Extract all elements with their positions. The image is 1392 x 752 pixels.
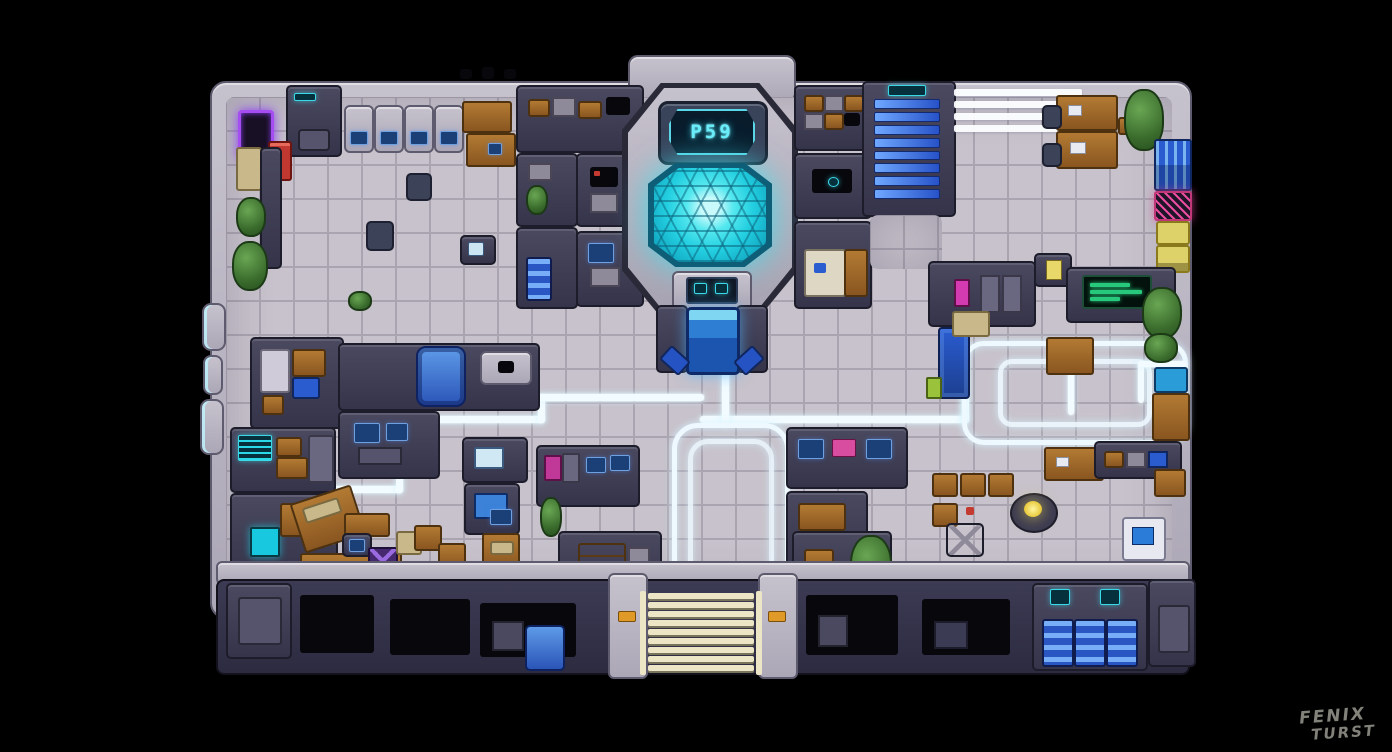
poster: [1046, 260, 1062, 280]
monitor: [586, 457, 606, 473]
fridge: [260, 349, 290, 393]
pipe-box: [492, 621, 524, 651]
crate-lid: [490, 541, 514, 555]
blue-container-shelf: [1154, 139, 1192, 191]
sink: [498, 361, 514, 373]
cabinet: [236, 147, 262, 191]
terminal-screen: [410, 131, 428, 145]
planter-tree: [232, 241, 268, 291]
crate: [262, 395, 284, 415]
blue-locker: [1074, 619, 1106, 667]
vending-machine-yellow: [1156, 221, 1190, 245]
pink-monitor: [832, 439, 856, 457]
cubby: [844, 95, 864, 112]
locker-screen: [1050, 589, 1070, 605]
antenna-icon: [504, 69, 516, 79]
vent-unit: [1002, 275, 1022, 313]
machine: [590, 167, 618, 187]
magenta-locker: [544, 455, 562, 481]
cyan-wall-sign: [238, 435, 272, 461]
seat: [960, 473, 986, 497]
console-screen: [468, 242, 484, 256]
gray-locker: [562, 453, 580, 483]
stair-step: [648, 611, 754, 617]
stair-step: [648, 665, 754, 671]
glow-path: [538, 394, 704, 401]
facade-opening: [922, 599, 1010, 655]
planter-tree: [1144, 333, 1178, 363]
study-desk: [1056, 131, 1118, 169]
stair-tread: [874, 151, 940, 161]
camera-lens-icon: [828, 177, 839, 187]
bunk-room: [250, 337, 344, 429]
study-desk: [1056, 95, 1118, 131]
stair-step: [648, 629, 754, 635]
cyan-machine: [1154, 367, 1188, 393]
screenshot-canvas: { "scene": { "description": "top-down pi…: [0, 0, 1392, 752]
terminal-text-line: [1090, 283, 1130, 287]
reactor-pool-web: [654, 168, 766, 262]
stair-step: [648, 593, 754, 599]
terminal-screen: [440, 131, 458, 145]
monitor: [866, 439, 892, 459]
terminal-desk: [344, 105, 374, 153]
lab-room: [462, 437, 528, 483]
gadget: [926, 377, 942, 399]
office-room: [794, 221, 872, 309]
blast-door: [416, 346, 466, 407]
hull-pod: [203, 355, 223, 395]
machine-light: [594, 171, 600, 176]
camera-room: [794, 153, 872, 219]
pylon-badge: [618, 611, 636, 622]
entrance-pylon: [758, 573, 798, 679]
monitor-room: [338, 411, 440, 479]
cyan-tv: [250, 527, 280, 557]
floor-plant: [348, 291, 372, 311]
medical-unit: [1122, 517, 1166, 561]
stair-step: [648, 656, 754, 662]
stair-step: [648, 602, 754, 608]
crate: [528, 99, 550, 117]
desk-shelf: [358, 447, 402, 465]
stair-tread: [874, 176, 940, 186]
machine: [308, 435, 334, 483]
seat: [988, 473, 1014, 497]
artist-signature: FENIX TURST: [1296, 705, 1378, 744]
cabinet: [1152, 393, 1190, 441]
planter-tree: [236, 197, 266, 237]
station-map: P59: [210, 55, 1192, 680]
facade-opening: [300, 595, 374, 653]
locker-screen: [1100, 589, 1120, 605]
planter-tree: [1142, 287, 1182, 339]
cubby: [804, 113, 824, 130]
monitor: [354, 423, 380, 443]
facade-machine: [1148, 579, 1196, 667]
antenna-icon: [482, 67, 494, 79]
console-room: [464, 483, 520, 535]
stair-tread: [874, 138, 940, 148]
console-screen: [349, 539, 365, 552]
console-cart: [460, 235, 496, 265]
terminal-desk: [434, 105, 464, 153]
cubby: [804, 95, 824, 112]
terminal-text-line: [1090, 297, 1120, 301]
office-chair: [406, 173, 432, 201]
strapped-table: [946, 523, 984, 557]
crate-lid: [302, 497, 343, 524]
stairwell-sign: [888, 85, 926, 96]
terminal-desk: [404, 105, 434, 153]
bin: [552, 97, 576, 117]
monitor: [798, 439, 824, 459]
side-screen: [490, 509, 512, 525]
monitor: [610, 455, 630, 471]
lab-screen: [474, 447, 504, 469]
utility-room: [516, 227, 578, 309]
holo-desk: [1046, 337, 1094, 375]
blue-locker: [1042, 619, 1074, 667]
console-eye: [715, 283, 728, 294]
paper: [1068, 105, 1082, 116]
signature-line2: TURST: [1310, 723, 1377, 743]
dresser: [292, 349, 326, 377]
stair-tread: [874, 125, 940, 135]
stair-tread: [874, 112, 940, 122]
sink-counter: [480, 351, 532, 385]
wooden-table: [466, 133, 516, 167]
floor-plant: [540, 497, 562, 537]
sign-room: [230, 427, 336, 493]
table-tablet: [488, 143, 502, 155]
monitor: [588, 243, 614, 263]
glow-path: [722, 370, 729, 426]
stair-step: [648, 647, 754, 653]
glow-path: [700, 416, 968, 423]
blue-monolith-door: [938, 327, 970, 399]
stair-tread: [874, 163, 940, 173]
crate: [276, 437, 302, 457]
machine-panel: [1158, 605, 1190, 653]
stool: [1154, 469, 1186, 497]
console-eye: [694, 283, 707, 294]
blue-drawer-unit: [526, 257, 552, 301]
hanging-plant: [526, 185, 548, 215]
stair-step: [648, 638, 754, 644]
paper: [1070, 142, 1086, 154]
shelf-item: [1126, 451, 1146, 468]
scanner-seat: [298, 129, 330, 151]
magenta-canister: [954, 279, 970, 307]
shelf-item: [1148, 451, 1168, 468]
seat: [932, 473, 958, 497]
stair-tread: [874, 189, 940, 199]
workstation-room: [786, 427, 908, 489]
green-terminal-screen: [1082, 275, 1152, 309]
white-desk: [804, 249, 846, 297]
crate: [952, 311, 990, 337]
stair-rail: [640, 591, 646, 675]
coffee-table: [798, 503, 846, 531]
facade-opening: [390, 599, 470, 655]
stair-tread: [874, 99, 940, 109]
neon-arcade: [1154, 191, 1192, 221]
pipe-box: [934, 621, 968, 649]
red-item: [966, 507, 974, 515]
closet-room: [516, 153, 578, 227]
medical-screen: [1132, 527, 1154, 545]
chamber-entrance: [686, 307, 740, 375]
pipe-box: [818, 615, 848, 647]
chamber-display: P59: [669, 109, 755, 155]
facade-panel: [238, 597, 282, 645]
paper: [1056, 457, 1069, 467]
facade-blue-door: [525, 625, 565, 671]
terminal-text-line: [1090, 290, 1142, 294]
table-lamp: [1024, 501, 1042, 517]
terminal-screen: [350, 131, 368, 145]
vent-unit: [980, 275, 1000, 313]
entrance-stairs: [648, 593, 754, 675]
cubby: [824, 95, 844, 112]
facade-opening: [806, 595, 898, 655]
shelf-item: [1104, 451, 1124, 468]
shelf: [528, 163, 552, 181]
terminal-desk: [374, 105, 404, 153]
hull-pod: [202, 303, 226, 351]
side-cabinet: [844, 249, 868, 297]
bench: [590, 193, 618, 213]
antenna-icon: [460, 69, 472, 79]
reactor-pool-glow: [648, 163, 772, 267]
office-chair: [1042, 105, 1062, 129]
crate: [578, 101, 602, 119]
blue-bin: [292, 377, 320, 399]
dark-locker: [606, 97, 630, 115]
terminal-screen: [380, 131, 398, 145]
blue-locker: [1106, 619, 1138, 667]
scanner-screen: [294, 93, 316, 101]
bench: [590, 267, 620, 287]
office-chair: [366, 221, 394, 251]
cubby: [844, 113, 860, 126]
stair-step: [648, 620, 754, 626]
cubby: [824, 113, 844, 130]
cubby-room: [794, 85, 872, 151]
glow-path: [1138, 363, 1144, 403]
wooden-table: [462, 101, 512, 133]
monitor: [386, 423, 408, 441]
facade-block: [226, 583, 292, 659]
hull-pod: [200, 399, 224, 455]
stair-rail: [756, 591, 762, 675]
crate: [276, 457, 308, 479]
blue-staircase: [874, 99, 940, 199]
blue-chip: [814, 263, 826, 273]
office-chair: [1042, 143, 1062, 167]
pylon-badge: [768, 611, 786, 622]
